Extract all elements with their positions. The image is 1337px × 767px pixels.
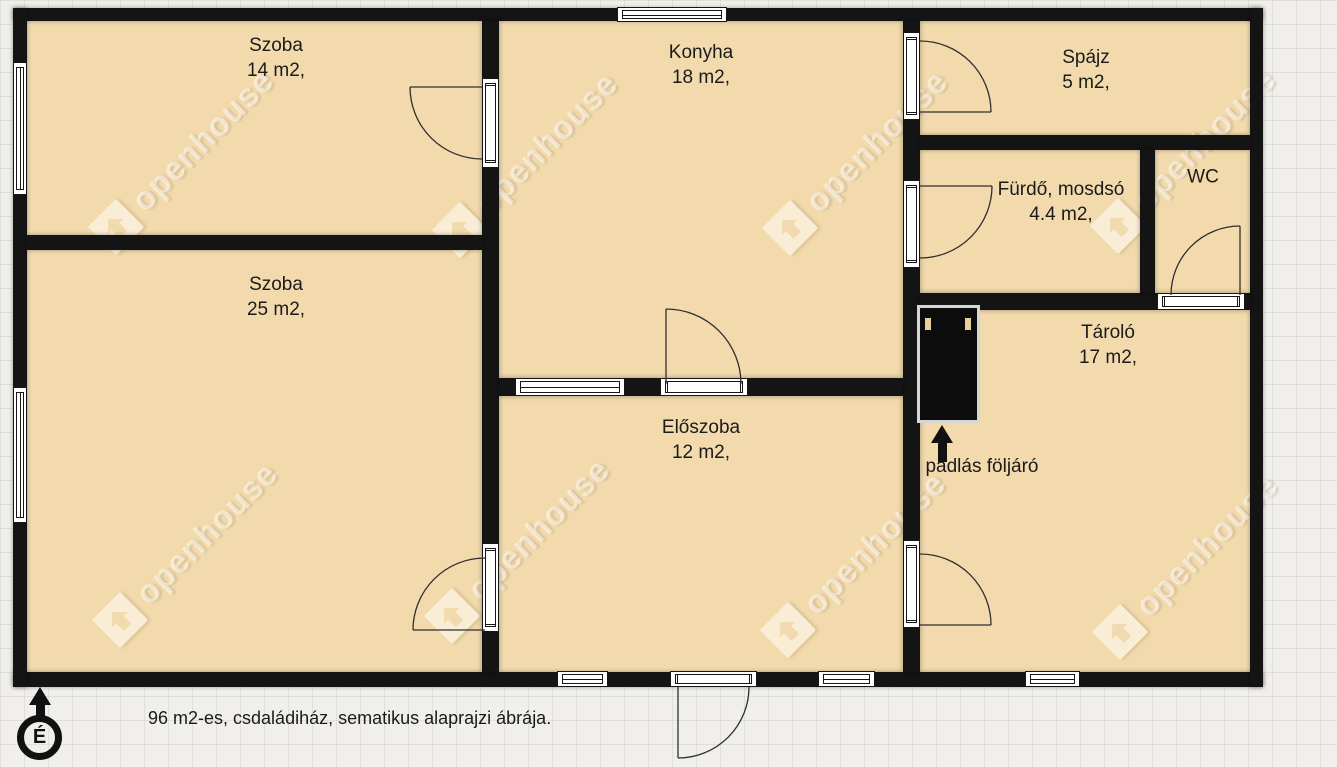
room-name: Tároló [1079, 320, 1137, 345]
window [515, 378, 625, 396]
room-label-tarolo: Tároló17 m2, [1079, 320, 1137, 370]
door-opening [903, 540, 920, 628]
wall-segment [1140, 150, 1155, 293]
window [617, 7, 727, 22]
window [13, 387, 27, 523]
window [557, 671, 608, 687]
room-name: WC [1187, 165, 1219, 190]
attic-hatch-hinge-icon [965, 318, 971, 330]
room-name: Szoba [247, 272, 305, 297]
room-area: 18 m2, [669, 65, 733, 90]
wall-segment [1250, 8, 1263, 687]
room-name: Szoba [247, 33, 305, 58]
room-area: 5 m2, [1062, 70, 1110, 95]
door-opening [670, 671, 757, 687]
attic-hatch-icon [917, 305, 980, 423]
room-label-konyha: Konyha18 m2, [669, 40, 733, 90]
window [1025, 671, 1080, 687]
wall-segment [920, 135, 1250, 150]
room-label-szoba-25: Szoba25 m2, [247, 272, 305, 322]
room-area: 12 m2, [662, 440, 740, 465]
room-name: Konyha [669, 40, 733, 65]
door-opening [903, 180, 920, 268]
room-label-spajz: Spájz5 m2, [1062, 45, 1110, 95]
room-area: 14 m2, [247, 58, 305, 83]
north-indicator: É [17, 715, 62, 760]
building-footprint [13, 8, 1263, 687]
room-label-furdo: Fürdő, mosdsó4.4 m2, [998, 177, 1125, 227]
room-label-wc: WC [1187, 165, 1219, 190]
north-label: É [33, 726, 46, 749]
room-area: 17 m2, [1079, 345, 1137, 370]
door-opening [903, 32, 920, 120]
window [818, 671, 875, 687]
room-name: Spájz [1062, 45, 1110, 70]
room-name: Fürdő, mosdsó [998, 177, 1125, 202]
door-opening [482, 78, 499, 168]
window [13, 62, 27, 195]
room-label-eloszoba: Előszoba12 m2, [662, 415, 740, 465]
room-area: 4.4 m2, [998, 202, 1125, 227]
room-label-szoba-14: Szoba14 m2, [247, 33, 305, 83]
attic-access-label: padlás följáró [925, 456, 1038, 478]
door-opening [660, 378, 748, 396]
door-opening [1157, 293, 1245, 310]
wall-segment [27, 235, 482, 250]
attic-hatch-hinge-icon [925, 318, 931, 330]
plan-caption: 96 m2-es, csdaládiház, sematikus alapraj… [148, 708, 551, 729]
door-swing-arc [678, 687, 749, 758]
room-area: 25 m2, [247, 297, 305, 322]
floorplan-canvas: openhouseopenhouseopenhouseopenhouseopen… [0, 0, 1337, 767]
room-name: Előszoba [662, 415, 740, 440]
door-opening [482, 543, 499, 632]
